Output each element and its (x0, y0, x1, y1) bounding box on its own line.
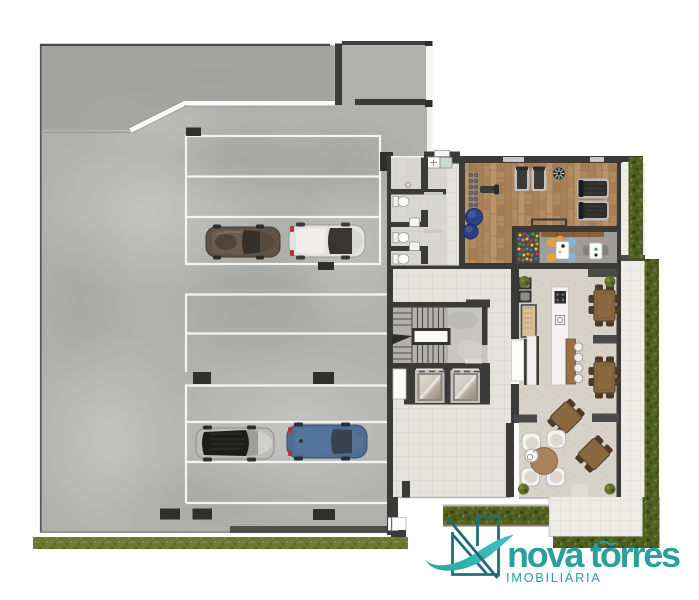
svg-text:IMOBILIÁRIA: IMOBILIÁRIA (506, 570, 602, 585)
svg-text:nova torres: nova torres (507, 534, 680, 575)
